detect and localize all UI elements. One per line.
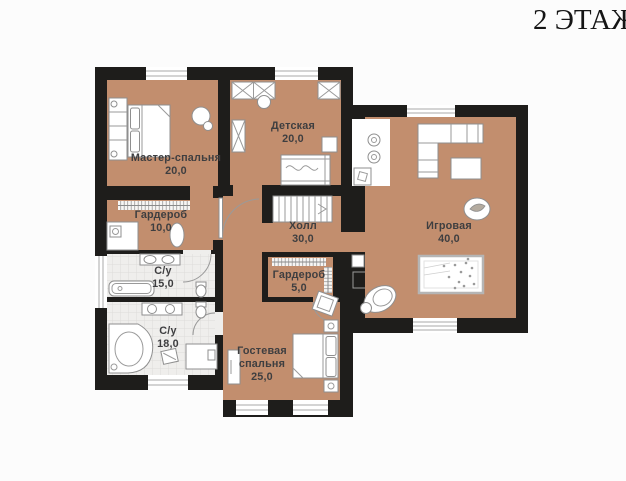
window-master xyxy=(146,67,187,80)
toilet-icon xyxy=(196,302,206,318)
label-bathroom18-name: С/у xyxy=(159,325,176,337)
bathtub-icon xyxy=(109,281,154,296)
label-children-area: 20,0 xyxy=(282,133,304,145)
stool-icon xyxy=(161,348,178,364)
door-children-room xyxy=(233,185,262,196)
coffee-table-icon xyxy=(451,158,481,179)
label-guest-name-2: спальня xyxy=(239,358,285,370)
window-guest-right xyxy=(293,400,328,415)
vanity-desk-icon xyxy=(186,344,217,369)
laundry-niche-icon xyxy=(107,222,138,250)
bed-icon xyxy=(281,155,330,185)
window-left-wall xyxy=(95,256,107,308)
nightstand-icon xyxy=(322,137,337,152)
label-playroom-name: Игровая xyxy=(426,220,472,232)
wardrobe-icon xyxy=(232,82,275,99)
label-wardrobe10-name: Гардероб xyxy=(135,209,188,221)
lamp-icon xyxy=(258,96,271,109)
billiard-table-icon xyxy=(419,256,483,293)
wardrobe-icon xyxy=(109,98,127,160)
window-bathroom-18 xyxy=(148,375,188,390)
wall-bath15-bath18 xyxy=(107,297,215,302)
label-bathroom15-name: С/у xyxy=(154,265,171,277)
label-wardrobe5-area: 5,0 xyxy=(291,282,307,294)
nightstand-icon xyxy=(324,320,338,332)
bed-icon xyxy=(293,334,338,378)
window-guest-left xyxy=(236,400,268,415)
corner-bathtub-icon xyxy=(109,324,153,373)
floor-plan-drawing: Мастер-спальня 20,0 Детская 20,0 Гардеро… xyxy=(0,0,626,481)
door-master-bedroom xyxy=(190,186,213,200)
window-playroom-top xyxy=(407,105,455,117)
label-hall-name: Холл xyxy=(289,220,317,232)
wall-stairs-side xyxy=(262,185,273,223)
door-leaf-wardrobe-10 xyxy=(219,198,223,238)
bed-icon xyxy=(128,105,170,157)
nightstand-icon xyxy=(324,380,338,392)
window-children xyxy=(275,67,318,80)
label-bathroom18-area: 18,0 xyxy=(157,338,179,350)
wardrobe-icon xyxy=(232,120,245,152)
floor-title: 2 ЭТАЖ xyxy=(533,4,626,37)
label-master-area: 20,0 xyxy=(165,165,187,177)
label-playroom-area: 40,0 xyxy=(438,233,460,245)
pouf-icon xyxy=(464,198,490,220)
door-bathroom-15 xyxy=(183,250,211,254)
window-playroom-bottom xyxy=(413,318,457,333)
door-playroom xyxy=(341,232,365,252)
label-wardrobe10-area: 10,0 xyxy=(150,222,172,234)
toilet-icon xyxy=(196,282,206,297)
label-guest-area: 25,0 xyxy=(251,371,273,383)
label-master-name: Мастер-спальня xyxy=(131,152,221,164)
wardrobe-icon xyxy=(318,82,340,99)
bar-niche-icon xyxy=(352,119,390,186)
ottoman-icon xyxy=(204,122,213,131)
label-hall-area: 30,0 xyxy=(292,233,314,245)
label-children-name: Детская xyxy=(271,120,315,132)
label-wardrobe5-name: Гардероб xyxy=(273,269,326,281)
stairs-icon xyxy=(273,196,332,222)
floor-plan-page: Мастер-спальня 20,0 Детская 20,0 Гардеро… xyxy=(0,0,626,481)
label-guest-name-1: Гостевая xyxy=(237,345,287,357)
label-bathroom15-area: 15,0 xyxy=(152,278,174,290)
pouf-icon xyxy=(170,223,184,247)
door-bathroom-18 xyxy=(215,312,223,335)
wall-shelf-icon xyxy=(352,255,364,267)
